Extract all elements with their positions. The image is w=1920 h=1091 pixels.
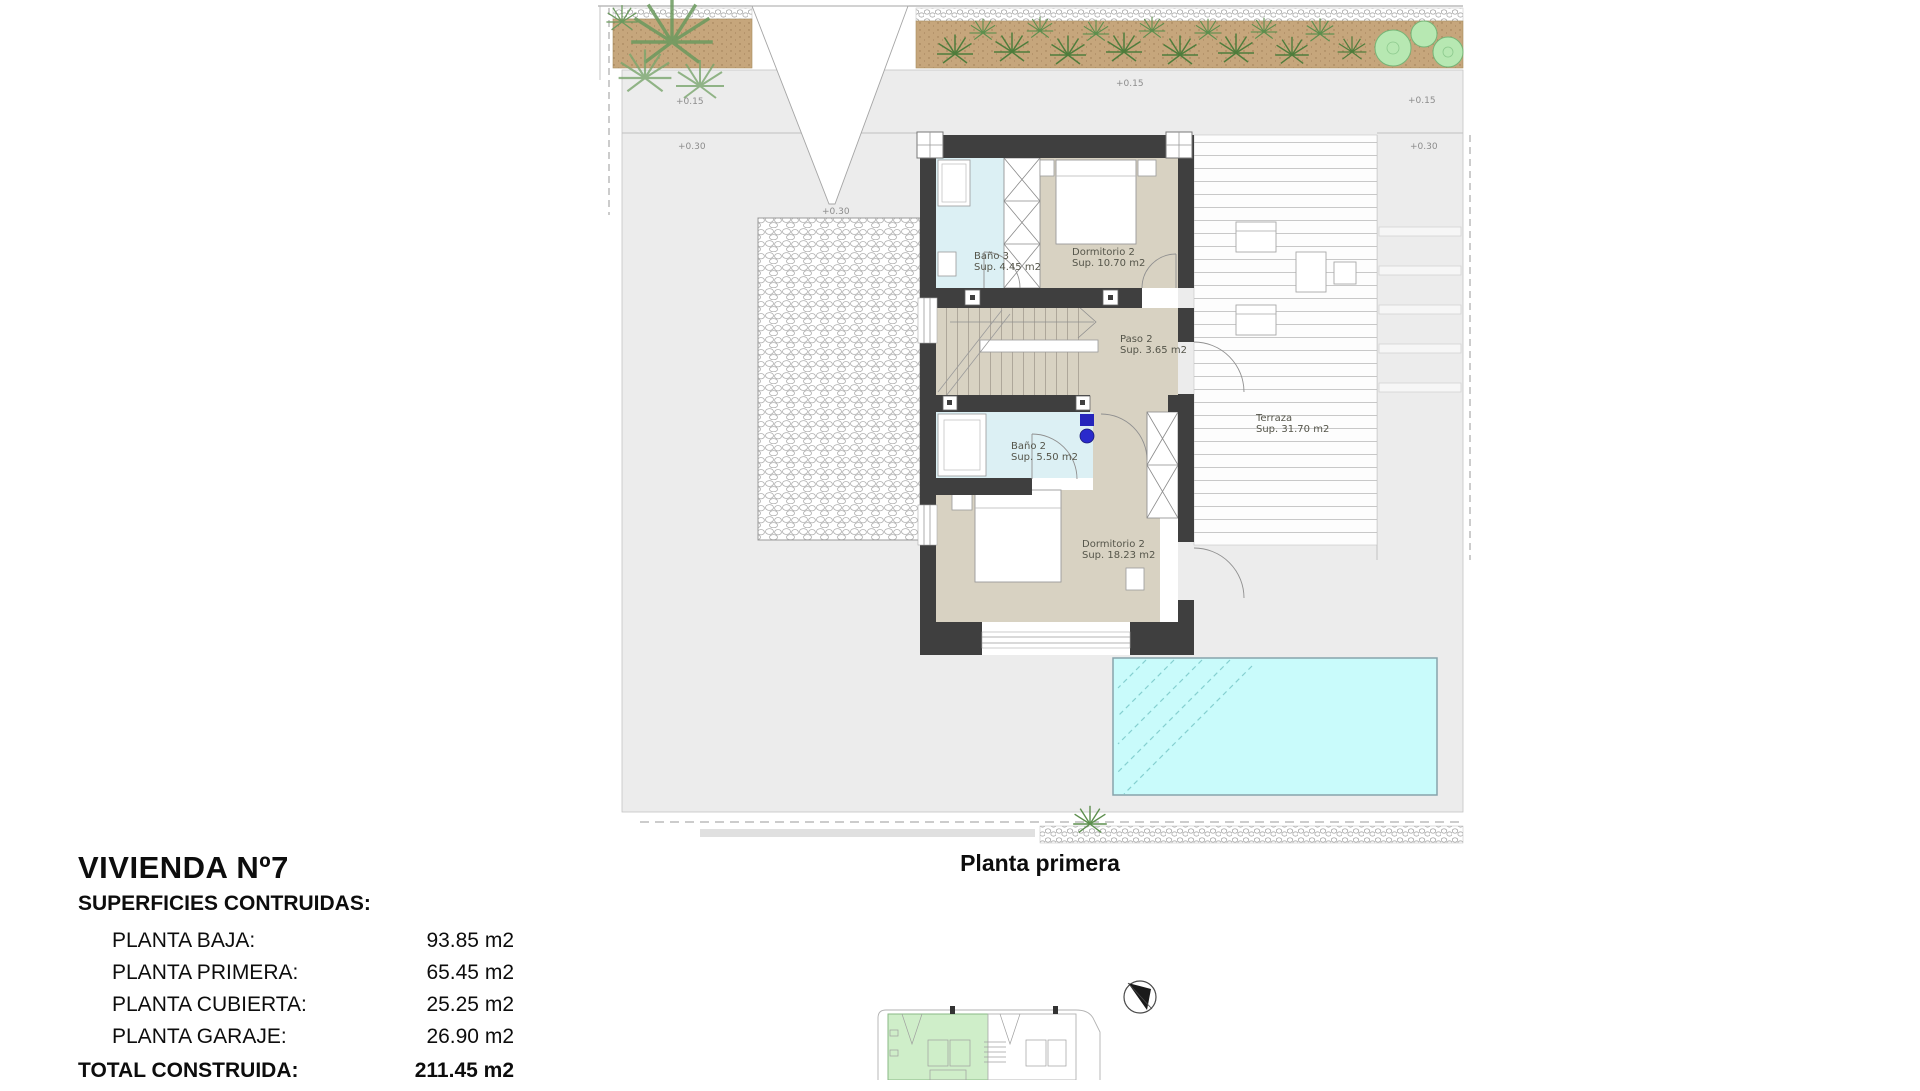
surface-total-label: TOTAL CONSTRUIDA: bbox=[78, 1059, 299, 1083]
title-block-title: VIVIENDA Nº7 bbox=[78, 850, 514, 886]
level-mark-right-upper: +0.15 bbox=[1408, 96, 1436, 106]
room-label-paso: Paso 2 Sup. 3.65 m2 bbox=[1120, 334, 1187, 356]
level-mark-driveway: +0.30 bbox=[822, 207, 850, 217]
terrace bbox=[1194, 135, 1377, 545]
room-area: Sup. 31.70 m2 bbox=[1256, 424, 1329, 435]
surface-value: 26.90 m2 bbox=[426, 1025, 514, 1049]
plan-caption: Planta primera bbox=[890, 850, 1190, 877]
surface-label: PLANTA BAJA: bbox=[112, 929, 255, 953]
planter-right bbox=[916, 8, 1463, 68]
surface-value: 25.25 m2 bbox=[426, 993, 514, 1017]
room-name: Baño 3 bbox=[974, 251, 1009, 262]
room-label-dormitorio-bottom: Dormitorio 2 Sup. 18.23 m2 bbox=[1082, 539, 1155, 561]
title-block: VIVIENDA Nº7 SUPERFICIES CONTRUIDAS: PLA… bbox=[78, 850, 514, 1091]
room-label-terraza: Terraza Sup. 31.70 m2 bbox=[1256, 413, 1329, 435]
staircase bbox=[938, 306, 1098, 396]
level-mark-right-lower: +0.30 bbox=[1410, 142, 1438, 152]
surface-row-planta-primera: PLANTA PRIMERA: 65.45 m2 bbox=[78, 961, 514, 985]
key-plan bbox=[878, 1006, 1100, 1080]
room-label-banio3: Baño 3 Sup. 4.45 m2 bbox=[974, 251, 1041, 273]
surface-row-planta-cubierta: PLANTA CUBIERTA: 25.25 m2 bbox=[78, 993, 514, 1017]
surface-row-planta-baja: PLANTA BAJA: 93.85 m2 bbox=[78, 929, 514, 953]
surface-value: 93.85 m2 bbox=[426, 929, 514, 953]
room-name: Terraza bbox=[1256, 413, 1292, 424]
surface-label: PLANTA GARAJE: bbox=[112, 1025, 287, 1049]
room-area: Sup. 5.50 m2 bbox=[1011, 452, 1078, 463]
room-name: Dormitorio 2 bbox=[1072, 247, 1135, 258]
title-block-subtitle: SUPERFICIES CONTRUIDAS: bbox=[78, 892, 514, 916]
room-area: Sup. 4.45 m2 bbox=[974, 262, 1041, 273]
surface-row-planta-garaje: PLANTA GARAJE: 26.90 m2 bbox=[78, 1025, 514, 1049]
surface-value: 65.45 m2 bbox=[426, 961, 514, 985]
room-label-banio2: Baño 2 Sup. 5.50 m2 bbox=[1011, 441, 1078, 463]
room-area: Sup. 10.70 m2 bbox=[1072, 258, 1145, 269]
level-mark-left-lower: +0.30 bbox=[678, 142, 706, 152]
room-area: Sup. 18.23 m2 bbox=[1082, 550, 1155, 561]
level-mark-center: +0.15 bbox=[1116, 79, 1144, 89]
wardrobe-right bbox=[1147, 412, 1178, 518]
room-name: Dormitorio 2 bbox=[1082, 539, 1145, 550]
room-name: Baño 2 bbox=[1011, 441, 1046, 452]
surface-total-value: 211.45 m2 bbox=[415, 1059, 514, 1083]
surface-label: PLANTA PRIMERA: bbox=[112, 961, 298, 985]
room-name: Paso 2 bbox=[1120, 334, 1153, 345]
swimming-pool bbox=[1113, 658, 1437, 795]
room-area: Sup. 3.65 m2 bbox=[1120, 345, 1187, 356]
corridor-floor bbox=[1093, 412, 1147, 490]
level-mark-left-upper: +0.15 bbox=[676, 97, 704, 107]
surface-label: PLANTA CUBIERTA: bbox=[112, 993, 307, 1017]
surface-row-total: TOTAL CONSTRUIDA: 211.45 m2 bbox=[78, 1059, 514, 1083]
cobblestone-patch bbox=[758, 218, 920, 540]
north-arrow bbox=[1124, 981, 1156, 1013]
room-label-dormitorio-top: Dormitorio 2 Sup. 10.70 m2 bbox=[1072, 247, 1145, 269]
